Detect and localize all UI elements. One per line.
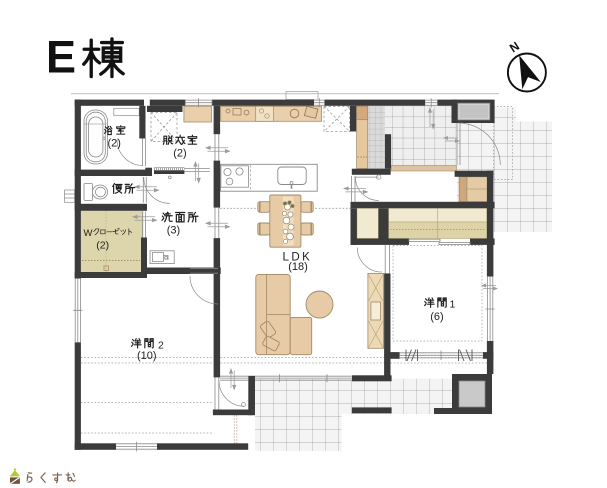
svg-text:(10): (10)	[137, 350, 157, 362]
svg-text:1: 1	[450, 298, 456, 310]
svg-text:(2): (2)	[173, 147, 186, 159]
svg-text:W: W	[84, 228, 93, 239]
svg-text:(3): (3)	[167, 225, 180, 237]
svg-text:2: 2	[158, 339, 164, 351]
svg-text:(2): (2)	[107, 137, 120, 149]
svg-text:(6): (6)	[430, 311, 443, 323]
svg-text:(18): (18)	[288, 261, 308, 273]
svg-text:(2): (2)	[96, 239, 109, 251]
svg-text:N: N	[507, 39, 522, 55]
svg-text:E: E	[46, 32, 76, 83]
